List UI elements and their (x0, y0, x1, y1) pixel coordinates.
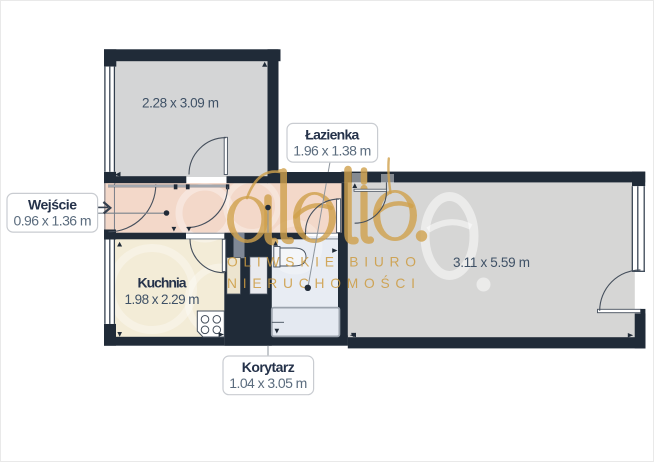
svg-text:Kuchnia: Kuchnia (138, 275, 187, 291)
svg-text:OLIWSKIE BIURO: OLIWSKIE BIURO (227, 255, 421, 270)
svg-text:1.98 x 2.29 m: 1.98 x 2.29 m (125, 292, 200, 307)
svg-text:Wejście: Wejście (28, 197, 77, 213)
svg-text:Korytarz: Korytarz (242, 359, 295, 375)
svg-text:3.11 x 5.59 m: 3.11 x 5.59 m (453, 255, 530, 270)
svg-text:NIERUCHOMOŚCI: NIERUCHOMOŚCI (227, 274, 420, 291)
svg-text:1.96 x 1.38 m: 1.96 x 1.38 m (293, 143, 371, 159)
svg-text:1.04 x 3.05 m: 1.04 x 3.05 m (229, 375, 307, 391)
svg-text:0.96 x 1.36 m: 0.96 x 1.36 m (14, 213, 92, 229)
svg-text:2.28 x 3.09 m: 2.28 x 3.09 m (142, 96, 219, 111)
svg-text:Łazienka: Łazienka (305, 127, 359, 143)
